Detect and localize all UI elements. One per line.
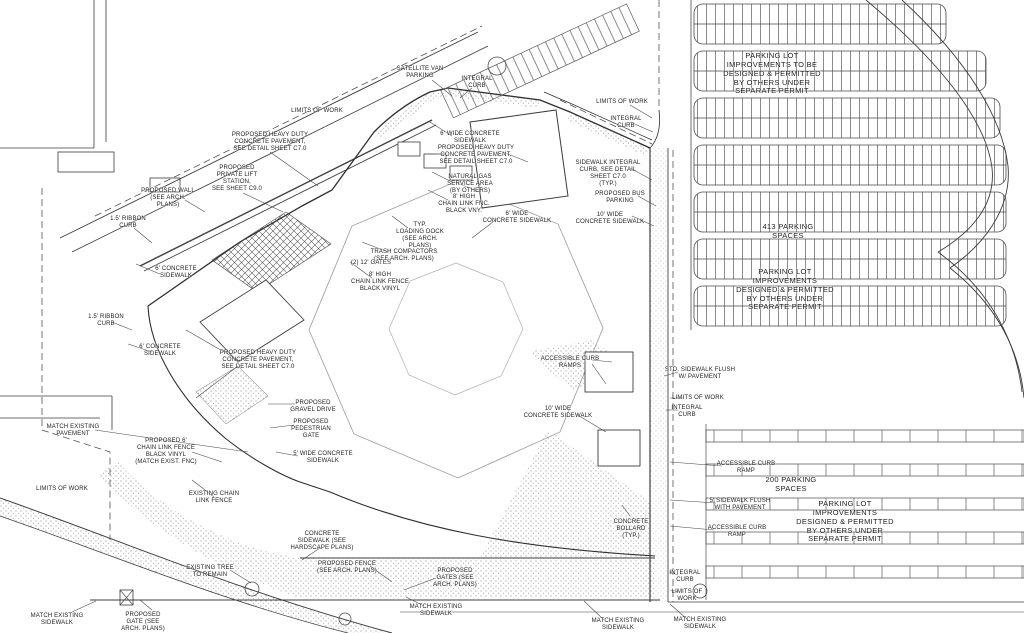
label-accessible-curb-ramps: ACCESSIBLE CURB RAMPS [541, 356, 600, 370]
label-match-existing-sidewalk-s1: MATCH EXISTING SIDEWALK [410, 604, 463, 618]
label-match-existing-sidewalk-s2: MATCH EXISTING SIDEWALK [592, 618, 645, 632]
label-south-lot-note: PARKING LOT IMPROVEMENTS DESIGNED & PERM… [796, 500, 894, 544]
label-pedestrian-gate: PROPOSED PEDESTRIAN GATE [291, 419, 331, 440]
building-octagon [309, 182, 603, 478]
label-concrete-sidewalk-1: 6' CONCRETE SIDEWALK [155, 266, 196, 280]
label-sidewalk-integral-curb: SIDEWALK INTEGRAL CURB, SEE DETAIL SHEET… [575, 160, 640, 188]
label-integral-curb-e: INTEGRAL CURB [671, 405, 702, 419]
label-sidewalk-10-c: 10' WIDE CONCRETE SIDEWALK [524, 406, 593, 420]
label-ribbon-curb-1: 1.5' RIBBON CURB [110, 216, 146, 230]
label-north-lot-note: PARKING LOT IMPROVEMENTS TO BE DESIGNED … [723, 52, 821, 96]
label-match-existing-sidewalk-sw: MATCH EXISTING SIDEWALK [31, 613, 84, 627]
label-proposed-wall: PROPOSED WALL (SEE ARCH. PLANS) [141, 188, 195, 209]
label-sidewalk-flush-se: 5' SIDEWALK FLUSH WITH PAVEMENT [710, 498, 771, 512]
label-limits-of-work-e: LIMITS OF WORK [672, 395, 724, 402]
label-north-lot-spaces: 413 PARKING SPACES [762, 223, 813, 241]
label-heavy-duty-pavement-2: PROPOSED HEAVY DUTY CONCRETE PAVEMENT, S… [220, 350, 296, 371]
label-private-lift-station: PROPOSED PRIVATE LIFT STATION, SEE SHEET… [212, 165, 262, 193]
label-ribbon-curb-2: 1.5' RIBBON CURB [88, 314, 124, 328]
label-proposed-gate-sw: PROPOSED GATE (SEE ARCH. PLANS) [121, 612, 165, 633]
label-accessible-curb-ramp-e2: ACCESSIBLE CURB RAMP [708, 525, 767, 539]
label-existing-chain-link: EXISTING CHAIN LINK FENCE [189, 491, 239, 505]
label-heavy-duty-pavement-3: PROPOSED HEAVY DUTY CONCRETE PAVEMENT, S… [438, 145, 514, 166]
label-sidewalk-5-wide: 5' WIDE CONCRETE SIDEWALK [293, 451, 353, 465]
label-integral-curb-s: INTEGRAL CURB [669, 570, 700, 584]
label-sidewalk-6-wide-e: 6' WIDE CONCRETE SIDEWALK [483, 211, 552, 225]
label-natural-gas-area: NATURAL GAS SERVICE AREA (BY OTHERS) [447, 174, 493, 195]
label-bus-parking: PROPOSED BUS PARKING [595, 191, 645, 205]
label-accessible-curb-ramp-e1: ACCESSIBLE CURB RAMP [717, 461, 776, 475]
label-sidewalk-flush-e: STD. SIDEWALK FLUSH W/ PAVEMENT [665, 367, 735, 381]
label-gravel-drive: PROPOSED GRAVEL DRIVE [290, 400, 335, 414]
label-existing-tree: EXISTING TREE TO REMAIN [186, 565, 234, 579]
label-south-lot-spaces: 200 PARKING SPACES [765, 476, 816, 494]
label-concrete-bollard: CONCRETE BOLLARD (TYP.) [614, 519, 649, 540]
label-limits-of-work-left: LIMITS OF WORK [36, 486, 88, 493]
label-concrete-sidewalk-hardscape: CONCRETE SIDEWALK (SEE HARDSCAPE PLANS) [290, 531, 353, 552]
label-proposed-gates: PROPOSED GATES (SEE ARCH. PLANS) [433, 568, 477, 589]
label-chain-link-fence-6ft: PROPOSED 6' CHAIN LINK FENCE BLACK VINYL… [135, 438, 197, 466]
label-limits-of-work-ne: LIMITS OF WORK [596, 99, 648, 106]
label-heavy-duty-pavement-1: PROPOSED HEAVY DUTY CONCRETE PAVEMENT, S… [232, 132, 308, 153]
label-proposed-fence: PROPOSED FENCE (SEE ARCH. PLANS) [317, 561, 377, 575]
label-sidewalk-6-wide-n: 6' WIDE CONCRETE SIDEWALK [440, 131, 500, 145]
label-concrete-sidewalk-2: 6' CONCRETE SIDEWALK [139, 344, 180, 358]
site-plan-sheet: LIMITS OF WORK PROPOSED HEAVY DUTY CONCR… [0, 0, 1024, 633]
label-integral-curb-top: INTEGRAL CURB [461, 76, 492, 90]
label-gates-12ft: (2) 12' GATES [351, 260, 391, 267]
label-match-existing-sidewalk-s3: MATCH EXISTING SIDEWALK [674, 617, 727, 631]
label-satellite-van-parking: SATELLITE VAN PARKING [397, 66, 444, 80]
label-integral-curb-ne: INTEGRAL CURB [610, 116, 641, 130]
label-limits-of-work-top: LIMITS OF WORK [291, 108, 343, 115]
label-north-lot-note-2: PARKING LOT IMPROVEMENTS DESIGNED & PERM… [736, 268, 834, 312]
label-chain-link-8-w: 8' HIGH CHAIN LINK FENCE BLACK VINYL [351, 272, 409, 293]
label-limits-of-work-s: LIMITS OF WORK [672, 589, 703, 603]
label-match-existing-pavement: MATCH EXISTING PAVEMENT [47, 424, 100, 438]
label-loading-dock: TYP. LOADING DOCK (SEE ARCH. PLANS) [396, 222, 444, 250]
label-sidewalk-10-ne: 10' WIDE CONCRETE SIDEWALK [576, 212, 645, 226]
